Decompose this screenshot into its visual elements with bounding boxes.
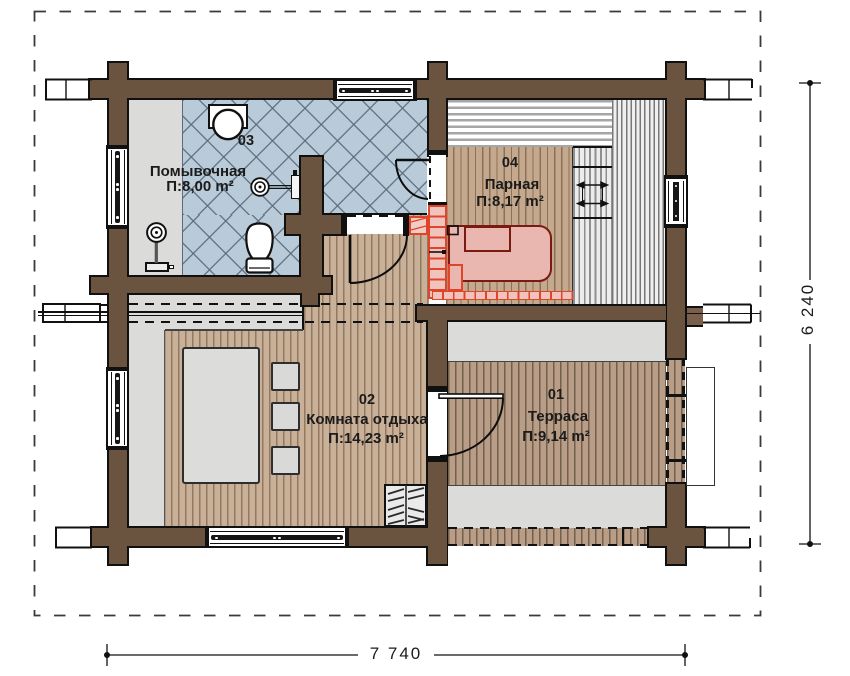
svg-text:6 240: 6 240 bbox=[798, 283, 817, 336]
svg-text:7 740: 7 740 bbox=[370, 644, 423, 663]
